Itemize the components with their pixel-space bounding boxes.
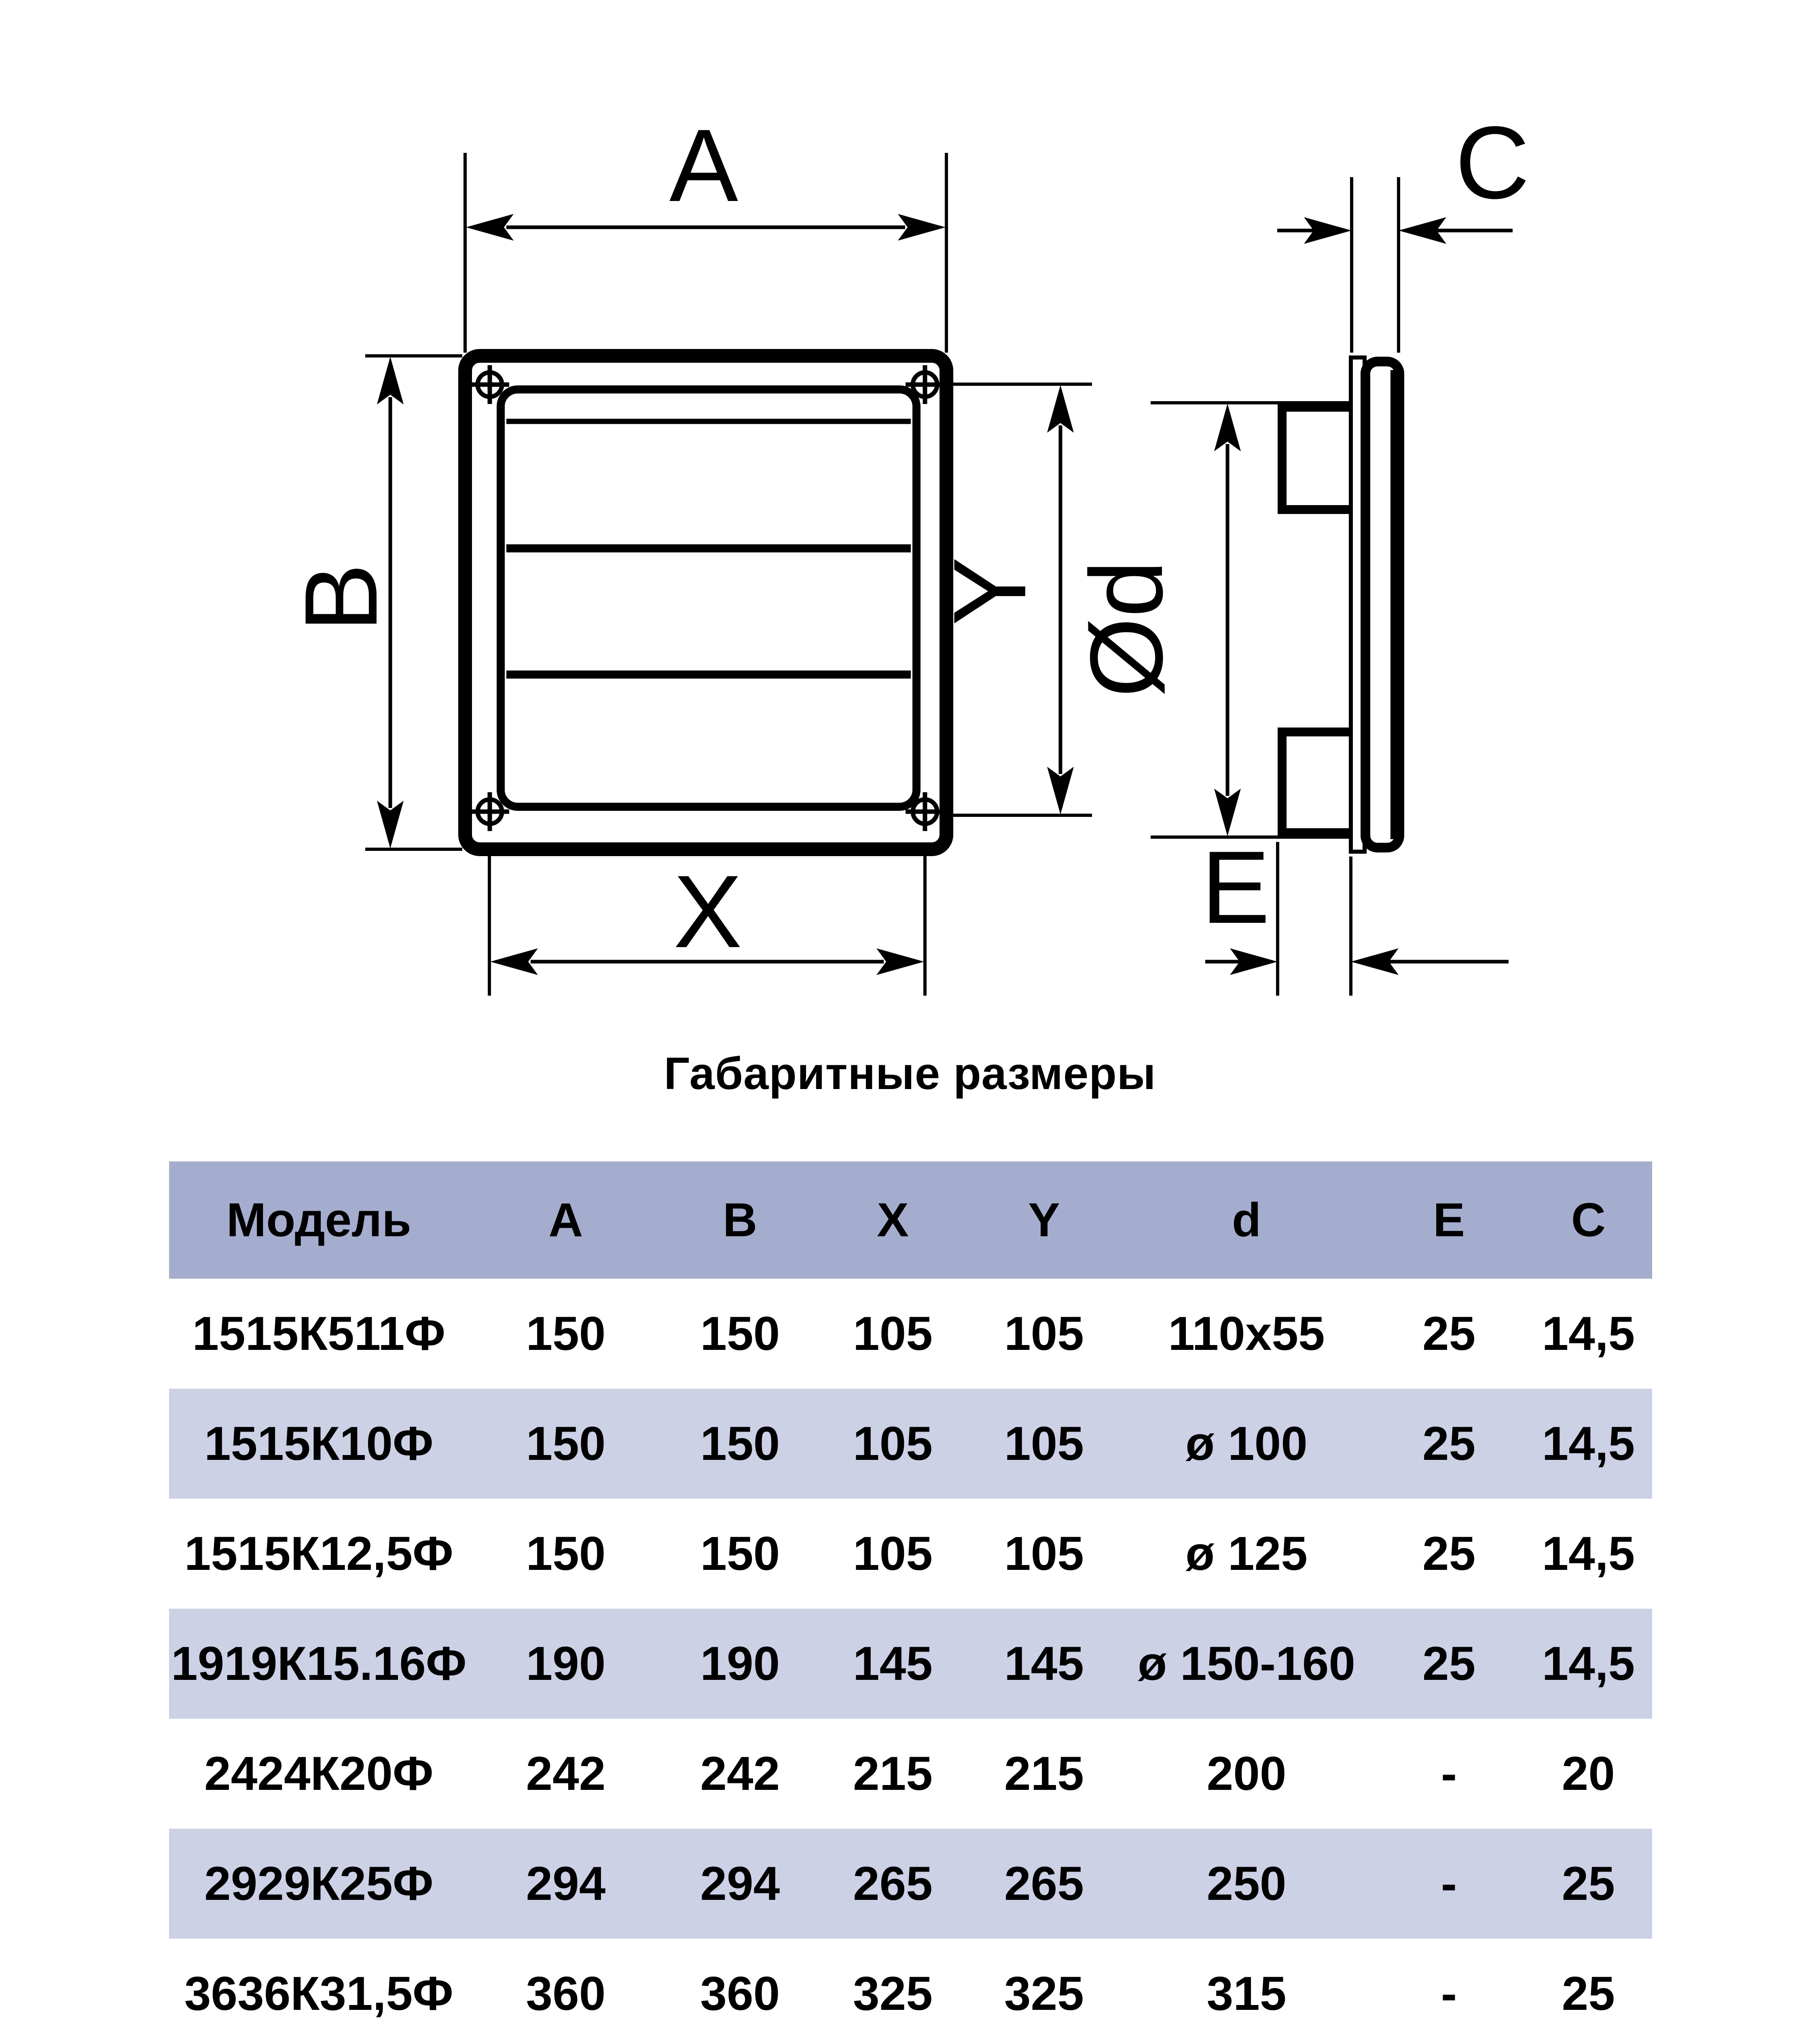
cell-c: 20 xyxy=(1525,1719,1652,1829)
dim-label-a: A xyxy=(669,108,738,223)
dim-label-x: X xyxy=(673,854,742,969)
side-view-grille xyxy=(1151,357,1399,852)
table-row: 2929К25Ф 294 294 265 265 250 - 25 xyxy=(169,1829,1652,1939)
cell-b: 150 xyxy=(663,1279,817,1389)
cell-e: 25 xyxy=(1373,1499,1525,1609)
cell-a: 150 xyxy=(469,1499,663,1609)
col-header-b: B xyxy=(663,1161,817,1279)
technical-drawing: A B X Y C xyxy=(0,0,1820,1132)
table-row: 2424К20Ф 242 242 215 215 200 - 20 xyxy=(169,1719,1652,1829)
cell-c: 14,5 xyxy=(1525,1389,1652,1499)
cell-b: 242 xyxy=(663,1719,817,1829)
cell-b: 190 xyxy=(663,1609,817,1719)
cell-c: 25 xyxy=(1525,1939,1652,2022)
cell-d: 110x55 xyxy=(1120,1279,1373,1389)
duct-spigot-bottom xyxy=(1282,732,1353,833)
col-header-e: E xyxy=(1373,1161,1525,1279)
cell-b: 294 xyxy=(663,1829,817,1939)
cell-d: ø 150-160 xyxy=(1120,1609,1373,1719)
front-view-grille xyxy=(465,356,946,849)
col-header-model: Модель xyxy=(169,1161,469,1279)
cell-x: 145 xyxy=(817,1609,968,1719)
cell-e: - xyxy=(1373,1719,1525,1829)
cell-c: 25 xyxy=(1525,1829,1652,1939)
cell-model: 2424К20Ф xyxy=(169,1719,469,1829)
cell-e: 25 xyxy=(1373,1389,1525,1499)
dim-label-d: Ød xyxy=(1069,560,1184,698)
dim-y: Y xyxy=(932,384,1092,815)
cell-model: 1919К15.16Ф xyxy=(169,1609,469,1719)
dim-d: Ød xyxy=(1069,404,1241,836)
cell-y: 325 xyxy=(968,1939,1120,2022)
duct-spigot-top xyxy=(1282,407,1353,510)
dimensions-table: Модель A B X Y d E C 1515К511Ф 150 150 1… xyxy=(169,1161,1652,2022)
cell-b: 150 xyxy=(663,1499,817,1609)
cell-a: 150 xyxy=(469,1279,663,1389)
table-row: 1919К15.16Ф 190 190 145 145 ø 150-160 25… xyxy=(169,1609,1652,1719)
cell-e: 25 xyxy=(1373,1279,1525,1389)
louver-panel xyxy=(501,389,916,807)
cell-y: 215 xyxy=(968,1719,1120,1829)
cell-b: 360 xyxy=(663,1939,817,2022)
table-header-row: Модель A B X Y d E C xyxy=(169,1161,1652,1279)
dim-label-e: E xyxy=(1201,830,1270,945)
cell-d: 315 xyxy=(1120,1939,1373,2022)
cell-a: 190 xyxy=(469,1609,663,1719)
dim-c: C xyxy=(1277,105,1530,353)
cell-c: 14,5 xyxy=(1525,1279,1652,1389)
dim-label-b: B xyxy=(284,563,399,632)
cell-c: 14,5 xyxy=(1525,1499,1652,1609)
cell-e: 25 xyxy=(1373,1609,1525,1719)
cell-x: 105 xyxy=(817,1279,968,1389)
cell-y: 265 xyxy=(968,1829,1120,1939)
col-header-y: Y xyxy=(968,1161,1120,1279)
dim-x: X xyxy=(489,852,925,996)
cell-e: - xyxy=(1373,1939,1525,2022)
cell-c: 14,5 xyxy=(1525,1609,1652,1719)
cell-b: 150 xyxy=(663,1389,817,1499)
table-row: 3636К31,5Ф 360 360 325 325 315 - 25 xyxy=(169,1939,1652,2022)
cell-a: 294 xyxy=(469,1829,663,1939)
cell-model: 1515К511Ф xyxy=(169,1279,469,1389)
cell-model: 2929К25Ф xyxy=(169,1829,469,1939)
cell-d: ø 100 xyxy=(1120,1389,1373,1499)
col-header-c: C xyxy=(1525,1161,1652,1279)
cell-model: 3636К31,5Ф xyxy=(169,1939,469,2022)
cell-x: 325 xyxy=(817,1939,968,2022)
col-header-d: d xyxy=(1120,1161,1373,1279)
cell-x: 105 xyxy=(817,1499,968,1609)
dim-b: B xyxy=(284,356,462,849)
cell-model: 1515К12,5Ф xyxy=(169,1499,469,1609)
table-row: 1515К12,5Ф 150 150 105 105 ø 125 25 14,5 xyxy=(169,1499,1652,1609)
cell-y: 105 xyxy=(968,1279,1120,1389)
cell-y: 145 xyxy=(968,1609,1120,1719)
cell-d: 200 xyxy=(1120,1719,1373,1829)
dim-a: A xyxy=(465,108,946,353)
cell-x: 215 xyxy=(817,1719,968,1829)
cell-model: 1515К10Ф xyxy=(169,1389,469,1499)
cell-y: 105 xyxy=(968,1389,1120,1499)
cell-d: 250 xyxy=(1120,1829,1373,1939)
cell-a: 242 xyxy=(469,1719,663,1829)
dim-label-y: Y xyxy=(932,557,1048,626)
cell-x: 105 xyxy=(817,1389,968,1499)
dim-e: E xyxy=(1201,830,1509,996)
cell-y: 105 xyxy=(968,1499,1120,1609)
table-row: 1515К10Ф 150 150 105 105 ø 100 25 14,5 xyxy=(169,1389,1652,1499)
cell-e: - xyxy=(1373,1829,1525,1939)
table-title: Габаритные размеры xyxy=(0,1047,1820,1100)
table-row: 1515К511Ф 150 150 105 105 110x55 25 14,5 xyxy=(169,1279,1652,1389)
col-header-x: X xyxy=(817,1161,968,1279)
col-header-a: A xyxy=(469,1161,663,1279)
cell-d: ø 125 xyxy=(1120,1499,1373,1609)
cell-a: 360 xyxy=(469,1939,663,2022)
dim-label-c: C xyxy=(1455,105,1530,220)
cell-x: 265 xyxy=(817,1829,968,1939)
cell-a: 150 xyxy=(469,1389,663,1499)
